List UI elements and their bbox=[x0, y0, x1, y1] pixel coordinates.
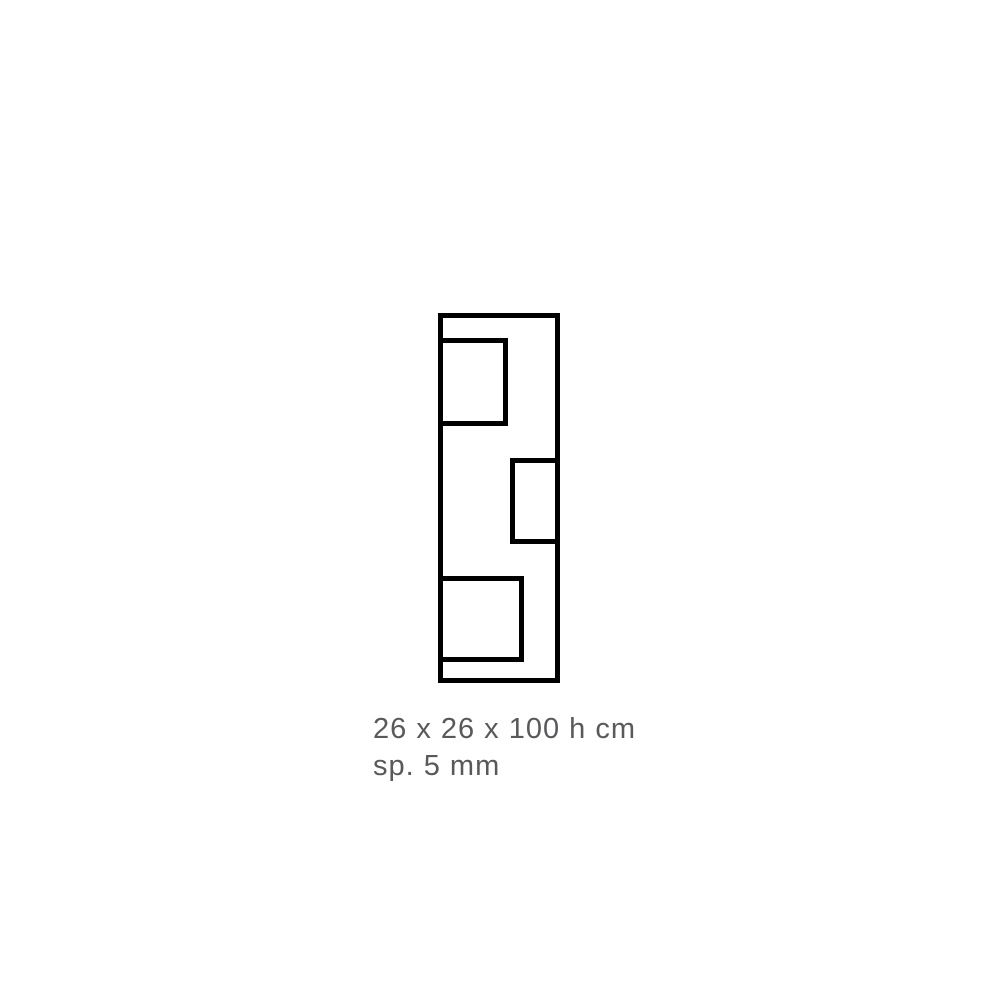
vase-window-bottom-left bbox=[438, 576, 524, 662]
page-canvas: 26 x 26 x 100 h cm sp. 5 mm bbox=[0, 0, 1000, 1000]
dimensions-label: 26 x 26 x 100 h cm bbox=[373, 711, 636, 748]
product-caption: 26 x 26 x 100 h cm sp. 5 mm bbox=[373, 711, 636, 785]
vase-window-top-left bbox=[438, 338, 508, 426]
vase-diagram bbox=[0, 0, 1000, 1000]
thickness-label: sp. 5 mm bbox=[373, 748, 636, 785]
vase-window-middle-right bbox=[510, 458, 560, 544]
